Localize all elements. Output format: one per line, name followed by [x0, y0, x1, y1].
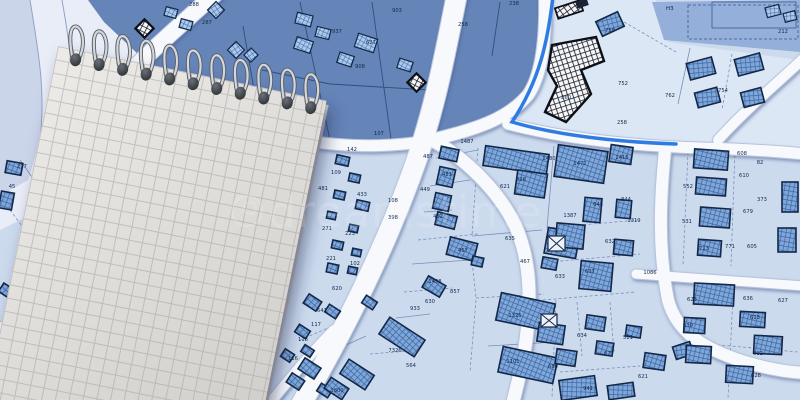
- parcel-number-label: 258: [617, 120, 627, 126]
- parcel-number-label: 467: [520, 259, 530, 265]
- parcel-number-label: 941: [583, 386, 593, 392]
- parcel-number-label: 288: [189, 2, 199, 8]
- building: [541, 257, 558, 270]
- parcel-number-label: 680: [548, 364, 558, 370]
- parcel-number-label: 643: [593, 202, 603, 208]
- parcel-number-label: 1101: [506, 359, 519, 365]
- parcel-number-label: 679: [743, 209, 753, 215]
- parcel-number-label: 102: [350, 261, 360, 267]
- parcel-number-label: 521: [623, 335, 633, 341]
- parcel-number-label: 1800: [330, 388, 343, 394]
- building: [782, 182, 798, 212]
- watermark-text: dreamstime: [268, 187, 542, 238]
- parcel-number-label: 1487: [460, 139, 473, 145]
- watermark: dreamstime: [232, 187, 542, 238]
- parcel-number-label: 613: [750, 315, 760, 321]
- parcel-number-label: 45: [9, 184, 16, 190]
- parcel-number-label: 762: [665, 93, 675, 99]
- building: [0, 191, 14, 210]
- building: [326, 263, 339, 274]
- parcel-number-label: 752: [618, 81, 628, 87]
- parcel-number-label: 212: [778, 29, 788, 35]
- parcel-number-label: 937: [332, 29, 342, 35]
- parcel-number-label: 621: [638, 374, 648, 380]
- parcel-number-label: 634: [577, 333, 588, 339]
- building: [699, 207, 730, 228]
- parcel-number-label: 627: [366, 40, 376, 46]
- parcel-number-label: 238: [509, 1, 519, 7]
- building: [471, 256, 484, 267]
- parcel-number-label: 451: [442, 172, 452, 178]
- parcel-number-label: 933: [410, 306, 420, 312]
- parcel-number-label: 1325: [508, 313, 521, 319]
- parcel-number-label: 142: [347, 147, 357, 153]
- map-canvas: H328828790393762790825823821275875275476…: [0, 0, 800, 400]
- building: [778, 228, 796, 252]
- parcel-number-label: 608: [737, 151, 747, 157]
- parcel-number-label: 908: [355, 64, 365, 70]
- parcel-number-label: 627: [778, 298, 788, 304]
- parcel-number-label: 771: [725, 244, 735, 250]
- building: [351, 248, 361, 257]
- parcel-number-label: 457: [458, 248, 468, 254]
- parcel-number-label: 1086: [643, 270, 656, 276]
- building: [579, 261, 613, 292]
- parcel-number-label: 758: [605, 28, 615, 34]
- parcel-number-label: 487: [423, 154, 433, 160]
- parcel-number-label: 605: [747, 244, 757, 250]
- parcel-number-label: 1472: [573, 161, 586, 167]
- parcel-number-label: 287: [202, 20, 212, 26]
- parcel-number-label: 903: [392, 8, 402, 14]
- parcel-number-label: 623: [687, 297, 697, 303]
- building: [693, 149, 728, 170]
- parcel-number-label: 626: [516, 177, 526, 183]
- parcel-number-label: 82: [757, 160, 764, 166]
- parcel-number-label: 260: [561, 95, 571, 101]
- building: [613, 239, 633, 256]
- building: [348, 173, 360, 183]
- parcel-number-label: 118: [298, 337, 308, 343]
- parcel-number-label: 552: [683, 184, 693, 190]
- building: [555, 349, 577, 367]
- corner-parcel-label: H3: [666, 6, 674, 12]
- building: [643, 353, 666, 371]
- parcel-number-label: 628: [751, 373, 761, 379]
- parcel-number-label: 564: [406, 363, 417, 369]
- parcel-number-label: 258: [458, 22, 468, 28]
- building: [686, 345, 712, 363]
- parcel-number-label: 713: [699, 246, 709, 252]
- parcel-number-label: 531: [682, 219, 692, 225]
- building: [726, 365, 754, 383]
- parcel-number-label: 857: [450, 289, 460, 295]
- building: [335, 155, 350, 167]
- parcel-number-label: 637: [585, 269, 595, 275]
- parcel-number-label: 1480: [542, 156, 555, 162]
- building: [693, 283, 734, 306]
- building: [607, 382, 635, 399]
- building: [695, 177, 726, 196]
- building: [585, 315, 606, 332]
- parcel-number-label: 636: [743, 296, 753, 302]
- parcel-number-label: 373: [757, 197, 767, 203]
- parcel-number-label: 641: [317, 308, 327, 314]
- building: [331, 240, 343, 250]
- parcel-number-label: 620: [332, 286, 342, 292]
- parcel-number-label: 630: [425, 299, 435, 305]
- parcel-number-label: 639: [683, 323, 693, 329]
- parcel-number-label: 109: [331, 170, 341, 176]
- parcel-number-label: 632: [605, 239, 615, 245]
- parcel-number-label: 1387: [563, 213, 576, 219]
- parcel-number-label: 107: [374, 131, 384, 137]
- parcel-number-label: 116: [288, 356, 298, 362]
- building: [347, 266, 357, 275]
- parcel-number-label: 754: [718, 88, 729, 94]
- building: [439, 146, 459, 161]
- parcel-number-label: 612: [753, 351, 763, 357]
- parcel-number-label: 217: [17, 164, 27, 170]
- parcel-number-label: 1319: [627, 218, 640, 224]
- parcel-number-label: 221: [326, 256, 336, 262]
- parcel-number-label: 633: [555, 274, 565, 280]
- parcel-number-label: 844: [621, 197, 632, 203]
- parcel-number-label: 1498: [428, 279, 441, 285]
- parcel-number-label: 1415: [615, 155, 628, 161]
- parcel-number-label: 610: [739, 173, 749, 179]
- stock-photo-cadastral-map-with-notepad: H328828790393762790825823821275875275476…: [0, 0, 800, 400]
- parcel-number-label: 677: [604, 351, 614, 357]
- parcel-number-label: 7326: [388, 348, 401, 354]
- parcel-number-label: 117: [311, 322, 321, 328]
